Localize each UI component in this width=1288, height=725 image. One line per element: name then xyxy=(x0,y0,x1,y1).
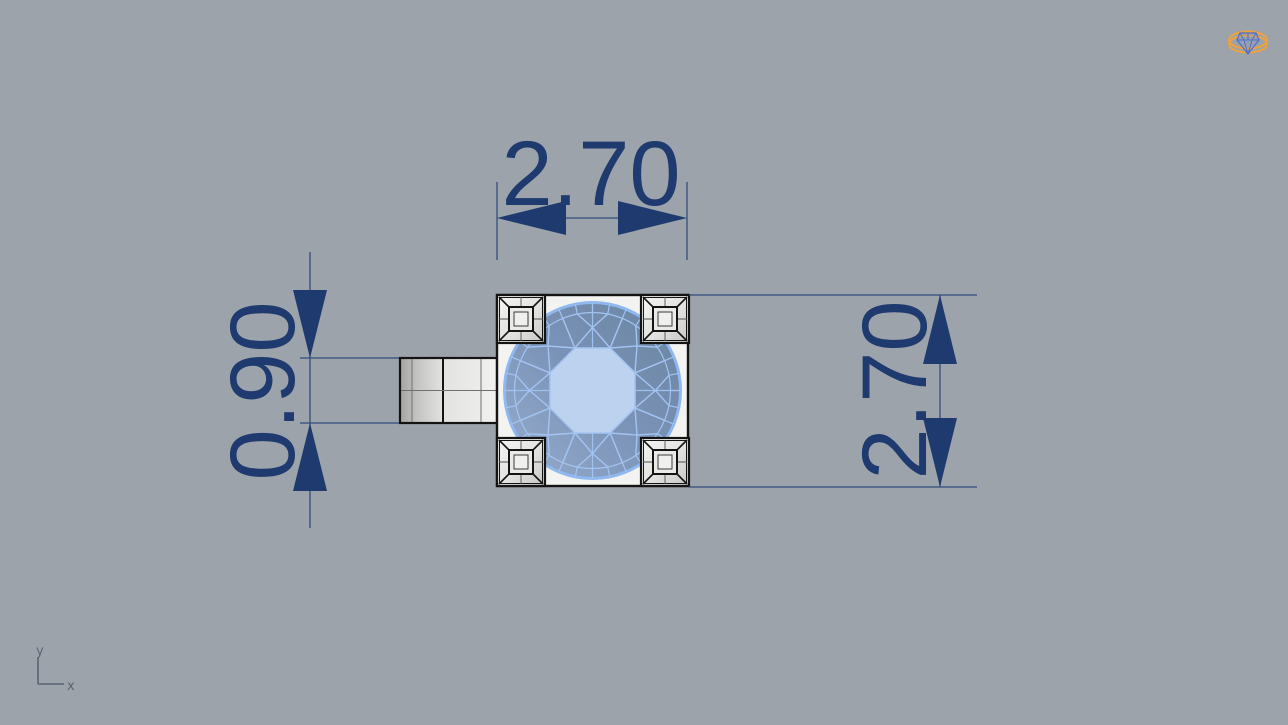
x-axis-label: x xyxy=(67,679,75,694)
y-axis-label: y xyxy=(36,644,44,659)
prong xyxy=(497,295,545,343)
prong xyxy=(641,295,689,343)
stone-table-facet xyxy=(550,348,635,433)
dimension-value-top: 2.70 xyxy=(501,123,680,225)
prong-top-facet xyxy=(658,312,672,326)
dimension-value-right: 2.70 xyxy=(844,300,946,479)
prong-top-facet xyxy=(514,312,528,326)
dimension-value-left: 0.90 xyxy=(212,301,314,480)
cad-viewport[interactable]: 2.70 0.90 2.70 y x xyxy=(0,0,1288,725)
prong-top-facet xyxy=(658,455,672,469)
prong xyxy=(497,438,545,486)
prong xyxy=(641,438,689,486)
prong-top-facet xyxy=(514,455,528,469)
shank-cross-section xyxy=(400,358,497,423)
